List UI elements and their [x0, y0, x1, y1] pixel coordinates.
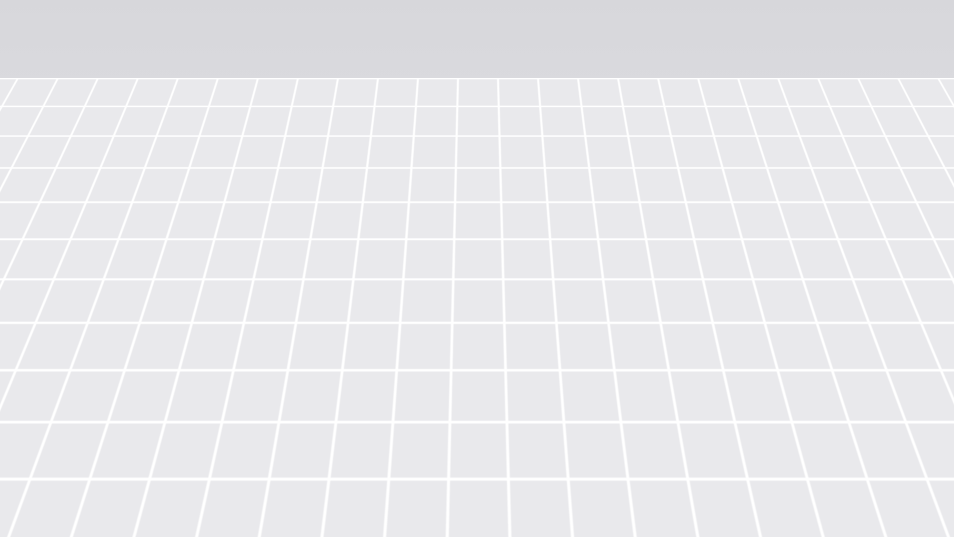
bottle: [693, 334, 702, 352]
wall-decor[interactable]: [455, 220, 465, 234]
wall-decor-line: [459, 222, 464, 231]
bed-pillow: [397, 238, 433, 261]
shelf-box: [510, 200, 537, 222]
bottle: [684, 331, 693, 349]
door-handle: [556, 229, 559, 232]
stool-leg: [534, 376, 538, 410]
viewport[interactable]: [0, 0, 954, 537]
plant-shelf[interactable]: [494, 156, 546, 316]
nightstand[interactable]: [462, 250, 490, 286]
bottle: [675, 328, 684, 346]
bed-pillow: [435, 233, 464, 256]
shelf-plant: [502, 260, 522, 275]
base-cabinet[interactable]: [628, 405, 676, 475]
shelf-box: [506, 240, 533, 262]
shelf-box: [512, 180, 539, 202]
bar-table-leg: [509, 344, 512, 368]
shelf-box: [504, 274, 531, 296]
desk-lamp[interactable]: [261, 366, 268, 392]
rack-leg: [321, 228, 335, 303]
shelf-box: [508, 220, 535, 242]
